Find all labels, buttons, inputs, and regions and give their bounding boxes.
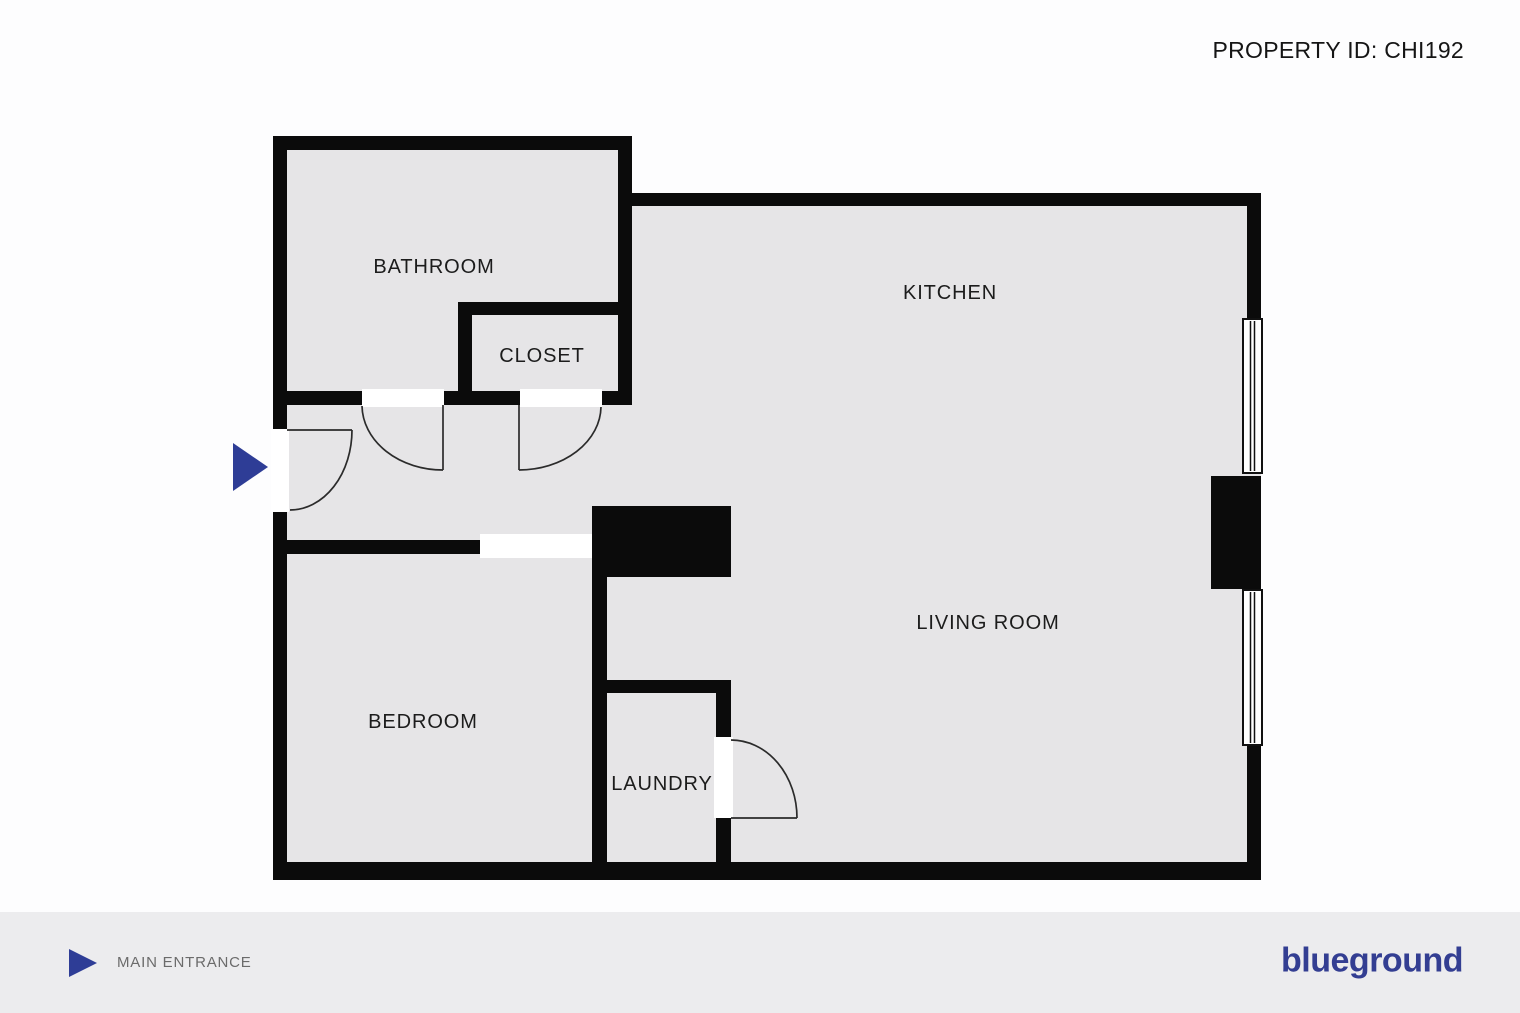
wall-laundry-top bbox=[592, 680, 731, 693]
window-upper bbox=[1243, 319, 1262, 473]
blueground-logo: blueground bbox=[1281, 941, 1463, 980]
floor-hall-bedroom-area bbox=[273, 405, 632, 880]
floor-areas bbox=[273, 136, 1261, 880]
main-entrance-legend-arrow-icon bbox=[68, 947, 98, 979]
entrance-door-opening bbox=[271, 429, 289, 512]
room-label-bedroom: BEDROOM bbox=[368, 711, 478, 733]
wall-closet-left bbox=[458, 302, 472, 405]
room-label-kitchen: KITCHEN bbox=[903, 282, 997, 304]
wall-right-lower bbox=[1247, 745, 1261, 880]
wall-bathroom-top bbox=[273, 136, 632, 150]
main-entrance-arrow-icon bbox=[233, 443, 268, 491]
room-label-closet: CLOSET bbox=[499, 345, 584, 367]
wall-center-block bbox=[592, 506, 731, 577]
wall-kitchen-top bbox=[618, 193, 1261, 206]
footer-bar: MAIN ENTRANCE blueground bbox=[0, 912, 1520, 1013]
main-entrance-legend: MAIN ENTRANCE bbox=[68, 912, 252, 1013]
wall-right-block bbox=[1211, 476, 1261, 589]
wall-right-upper bbox=[1247, 193, 1261, 319]
floor-plan: BATHROOM CLOSET KITCHEN LIVING ROOM BEDR… bbox=[0, 0, 1520, 1013]
wall-closet-top bbox=[458, 302, 632, 315]
legend-arrow-shape bbox=[69, 949, 97, 977]
main-entrance-legend-label: MAIN ENTRANCE bbox=[117, 954, 252, 971]
wall-left-lower bbox=[273, 512, 287, 880]
window-lower bbox=[1243, 590, 1262, 745]
room-label-living-room: LIVING ROOM bbox=[916, 612, 1059, 634]
wall-laundry-left bbox=[592, 577, 607, 863]
wall-bottom bbox=[273, 862, 1261, 880]
wall-left-upper bbox=[273, 136, 287, 429]
wall-laundry-right-lower bbox=[716, 818, 731, 863]
closet-door-opening bbox=[520, 389, 602, 407]
wall-bathroom-right bbox=[618, 136, 632, 405]
window-lower-frame bbox=[1243, 590, 1262, 745]
laundry-door-opening bbox=[714, 737, 733, 818]
bathroom-door-opening bbox=[362, 389, 444, 407]
bedroom-passage-opening bbox=[480, 534, 592, 558]
room-label-bathroom: BATHROOM bbox=[373, 256, 494, 278]
wall-laundry-right-upper bbox=[716, 680, 731, 737]
window-upper-frame bbox=[1243, 319, 1262, 473]
room-label-laundry: LAUNDRY bbox=[611, 773, 713, 795]
